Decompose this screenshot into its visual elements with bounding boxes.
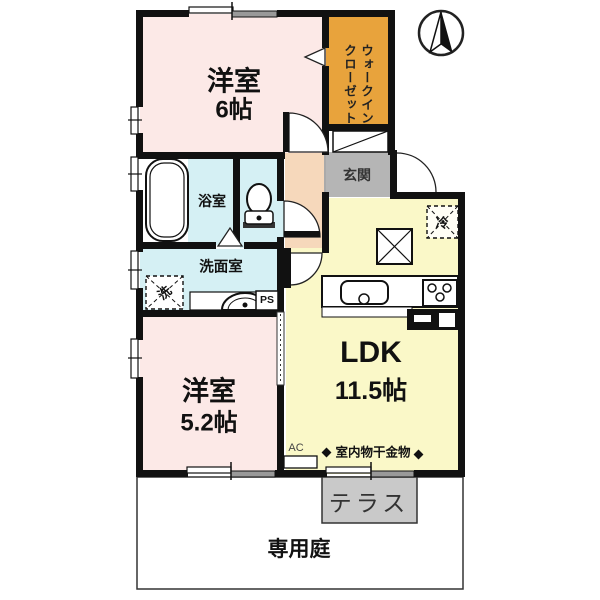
compass-north-icon bbox=[419, 11, 463, 55]
bedroom1-size-label: 6帖 bbox=[215, 90, 252, 125]
gas-stove-icon bbox=[423, 280, 457, 306]
terrace-label: テラス bbox=[329, 484, 410, 518]
sliding-door bbox=[277, 312, 284, 385]
walkin-closet-line2: クローゼット bbox=[340, 44, 357, 140]
washroom-label: 洗面室 bbox=[199, 256, 243, 277]
ldk-size-label: 11.5帖 bbox=[335, 371, 407, 407]
fridge-label: 冷 bbox=[435, 213, 448, 232]
cupboard-space-icon bbox=[377, 229, 412, 264]
air-conditioner-icon bbox=[284, 456, 317, 468]
floorplan: 洋室 6帖 ウォークイン クローゼット 玄関 浴室 洗面室 洗 PS LDK 1… bbox=[0, 0, 600, 600]
ac-label: AC bbox=[288, 442, 303, 454]
entrance-door-arc bbox=[397, 153, 436, 192]
floorplan-drawing bbox=[0, 0, 600, 600]
genkan-label: 玄関 bbox=[343, 165, 371, 185]
kitchen-sink-icon bbox=[341, 281, 388, 304]
ps-label: PS bbox=[260, 294, 274, 306]
garden-label: 専用庭 bbox=[268, 533, 331, 563]
bathtub-icon bbox=[146, 159, 188, 241]
laundry-label: 室内物干金物 bbox=[335, 442, 410, 461]
walkin-closet-label: ウォークイン クローゼット bbox=[340, 44, 374, 140]
ldk-name-label: LDK bbox=[340, 336, 402, 370]
walkin-closet-line1: ウォークイン bbox=[357, 44, 374, 140]
bath-label: 浴室 bbox=[198, 191, 226, 211]
bedroom2-size-label: 5.2帖 bbox=[180, 403, 237, 438]
